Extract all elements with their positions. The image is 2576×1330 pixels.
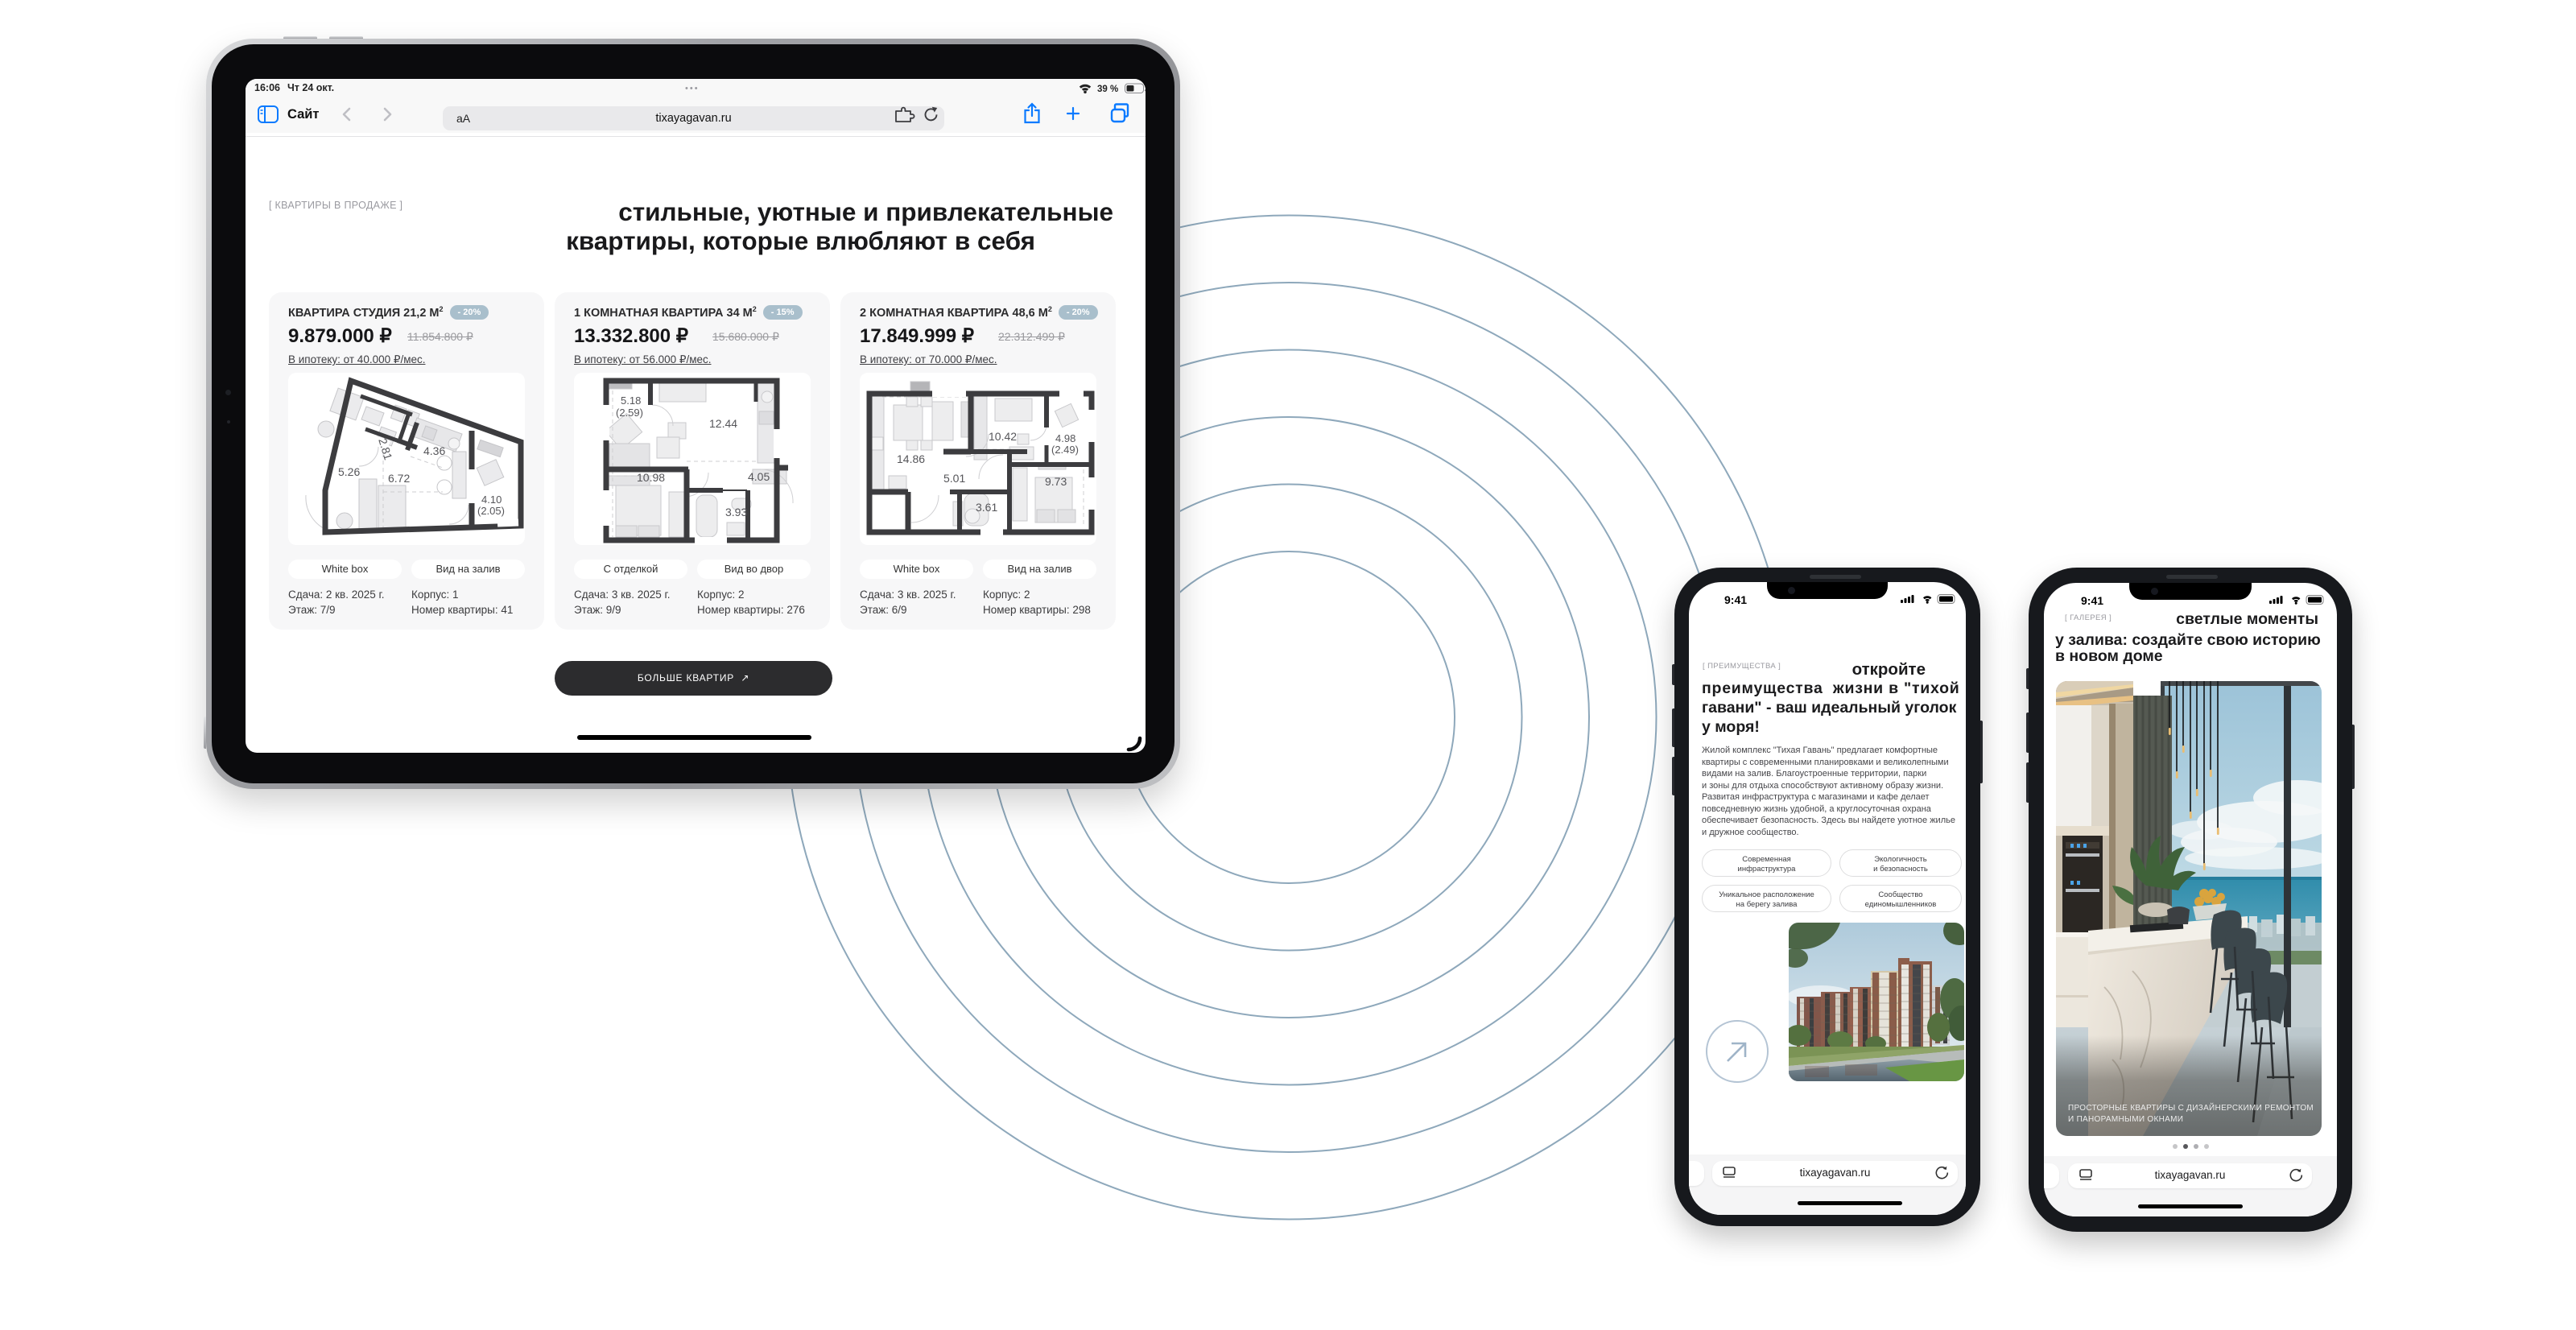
svg-text:5.01: 5.01 (943, 472, 965, 485)
svg-text:6.72: 6.72 (388, 472, 410, 485)
svg-text:12.44: 12.44 (709, 417, 737, 430)
svg-text:5.18: 5.18 (621, 394, 641, 407)
svg-text:(2.59): (2.59) (616, 407, 643, 419)
svg-text:10.42: 10.42 (989, 430, 1017, 443)
svg-text:(2.49): (2.49) (1051, 444, 1079, 456)
svg-text:3.93: 3.93 (725, 506, 747, 518)
svg-text:9.73: 9.73 (1045, 475, 1067, 488)
svg-text:4.36: 4.36 (423, 444, 445, 457)
svg-text:3.61: 3.61 (976, 501, 997, 514)
svg-text:39 %: 39 % (1097, 85, 1118, 94)
svg-text:14.86: 14.86 (897, 452, 925, 465)
svg-text:10.98: 10.98 (637, 471, 665, 484)
svg-text:4.10: 4.10 (481, 494, 502, 506)
svg-text:4.98: 4.98 (1055, 432, 1075, 444)
svg-text:(2.05): (2.05) (477, 505, 505, 517)
svg-text:5.26: 5.26 (338, 465, 360, 478)
svg-text:4.05: 4.05 (748, 470, 770, 483)
